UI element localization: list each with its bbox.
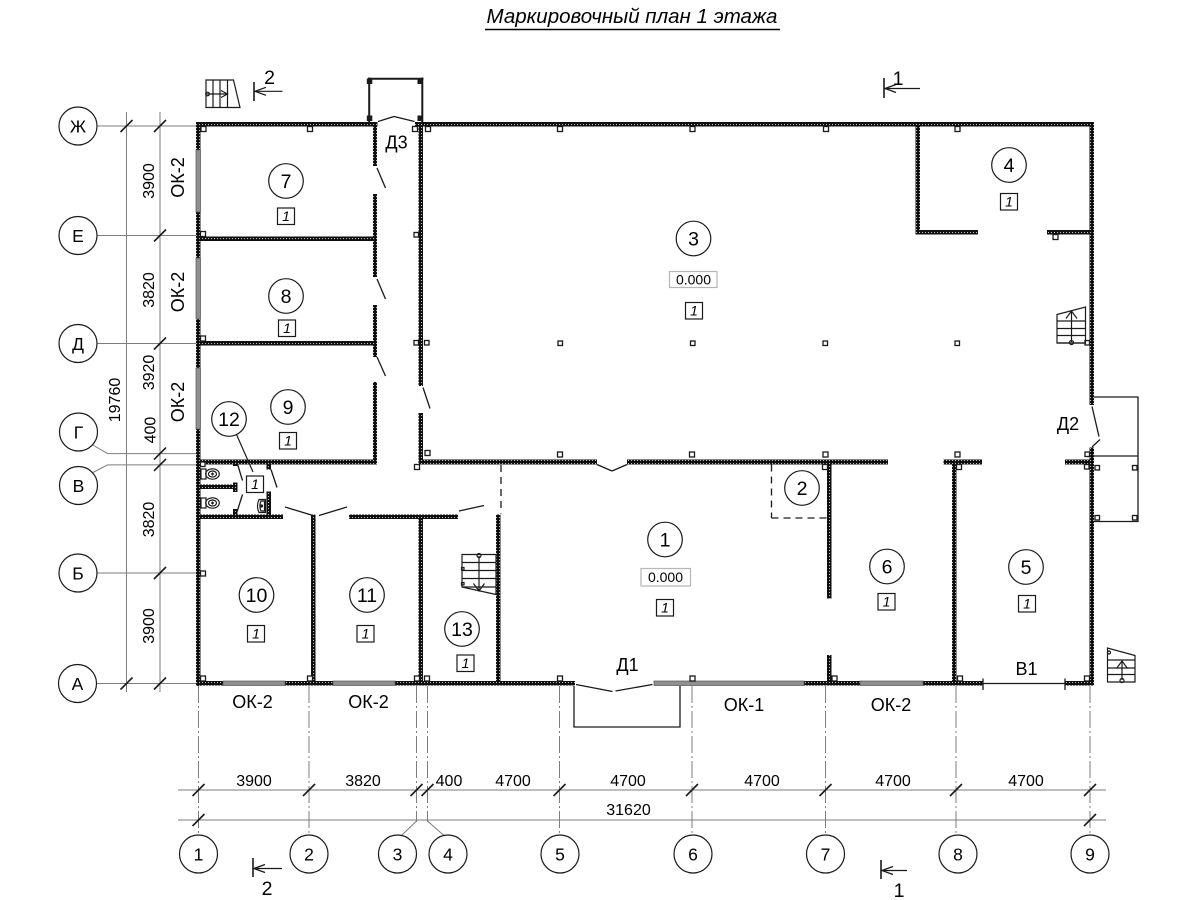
- svg-text:3820: 3820: [141, 502, 158, 538]
- svg-text:5: 5: [555, 845, 565, 865]
- svg-text:ОК-2: ОК-2: [348, 692, 389, 712]
- svg-text:Маркировочный план 1 этажа: Маркировочный план 1 этажа: [487, 5, 778, 28]
- svg-text:1: 1: [251, 476, 259, 492]
- svg-text:400: 400: [436, 773, 463, 790]
- svg-text:4700: 4700: [610, 773, 646, 790]
- svg-text:0.000: 0.000: [676, 272, 711, 288]
- svg-text:ОК-2: ОК-2: [871, 695, 912, 715]
- svg-text:Б: Б: [72, 564, 83, 584]
- svg-text:3900: 3900: [141, 163, 158, 199]
- svg-text:1: 1: [284, 433, 292, 449]
- svg-text:11: 11: [357, 585, 377, 607]
- svg-text:Д: Д: [72, 334, 84, 354]
- svg-text:19760: 19760: [107, 378, 124, 423]
- svg-text:ОК-2: ОК-2: [168, 157, 188, 198]
- svg-text:ОК-2: ОК-2: [168, 272, 188, 313]
- svg-text:3: 3: [393, 845, 403, 865]
- svg-text:3: 3: [688, 229, 699, 251]
- svg-text:1: 1: [883, 594, 891, 610]
- svg-text:1: 1: [282, 208, 290, 224]
- svg-text:4700: 4700: [744, 773, 780, 790]
- svg-text:2: 2: [264, 67, 275, 89]
- svg-text:1: 1: [1005, 194, 1013, 210]
- svg-text:Д2: Д2: [1057, 414, 1079, 434]
- svg-text:1: 1: [252, 626, 260, 642]
- svg-text:400: 400: [143, 417, 160, 444]
- svg-text:1: 1: [690, 303, 698, 319]
- svg-text:13: 13: [451, 619, 473, 641]
- svg-text:9: 9: [283, 397, 294, 419]
- svg-text:9: 9: [1085, 845, 1095, 865]
- svg-text:4700: 4700: [875, 773, 911, 790]
- svg-text:2: 2: [797, 478, 808, 500]
- svg-text:Ж: Ж: [70, 117, 86, 137]
- svg-text:4700: 4700: [1008, 773, 1044, 790]
- svg-text:В1: В1: [1015, 659, 1037, 679]
- svg-text:4: 4: [443, 845, 453, 865]
- svg-text:1: 1: [894, 880, 905, 900]
- svg-text:А: А: [72, 674, 84, 694]
- svg-text:1: 1: [1023, 596, 1031, 612]
- svg-text:2: 2: [262, 878, 273, 900]
- svg-text:1: 1: [661, 600, 669, 616]
- svg-text:5: 5: [1021, 557, 1032, 579]
- svg-text:2: 2: [304, 845, 314, 865]
- svg-text:1: 1: [194, 845, 204, 865]
- svg-text:1: 1: [362, 626, 370, 642]
- svg-text:3820: 3820: [345, 773, 381, 790]
- svg-text:1: 1: [283, 320, 291, 336]
- svg-text:8: 8: [281, 286, 292, 308]
- svg-text:4700: 4700: [495, 773, 531, 790]
- svg-text:31620: 31620: [606, 802, 651, 819]
- svg-text:ОК-2: ОК-2: [232, 692, 273, 712]
- svg-text:3920: 3920: [141, 355, 158, 391]
- svg-text:12: 12: [218, 409, 240, 431]
- svg-text:7: 7: [821, 845, 831, 865]
- svg-text:Г: Г: [74, 423, 84, 443]
- svg-text:1: 1: [893, 68, 904, 90]
- svg-text:6: 6: [688, 845, 698, 865]
- svg-text:8: 8: [953, 845, 963, 865]
- svg-text:1: 1: [660, 530, 671, 552]
- svg-text:3900: 3900: [236, 773, 272, 790]
- svg-text:4: 4: [1004, 155, 1015, 177]
- svg-text:3900: 3900: [141, 608, 158, 644]
- svg-text:10: 10: [246, 585, 268, 607]
- svg-text:В: В: [73, 476, 85, 496]
- svg-text:6: 6: [882, 557, 893, 579]
- svg-text:7: 7: [281, 171, 292, 193]
- svg-text:1: 1: [462, 655, 470, 671]
- svg-text:3820: 3820: [141, 272, 158, 308]
- svg-text:ОК-2: ОК-2: [168, 382, 188, 423]
- svg-text:Д1: Д1: [616, 655, 638, 675]
- svg-text:Д3: Д3: [385, 133, 407, 153]
- svg-text:ОК-1: ОК-1: [724, 695, 765, 715]
- svg-text:0.000: 0.000: [648, 569, 683, 585]
- svg-text:Е: Е: [72, 226, 84, 246]
